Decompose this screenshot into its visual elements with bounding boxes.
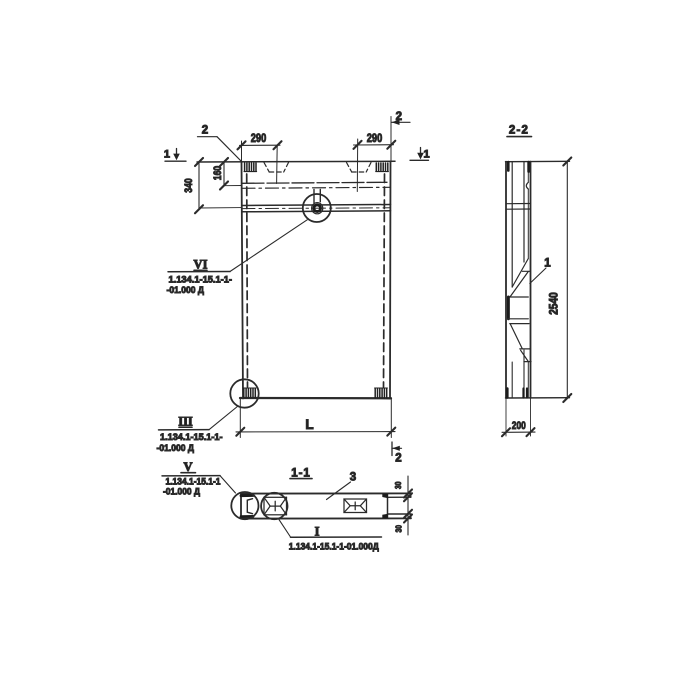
svg-text:200: 200 <box>512 420 526 432</box>
svg-text:290: 290 <box>367 133 383 145</box>
svg-text:1.134.1-15.1-1-: 1.134.1-15.1-1- <box>160 432 223 443</box>
svg-text:-01.000 Д: -01.000 Д <box>163 487 200 498</box>
svg-text:1: 1 <box>544 257 551 269</box>
svg-text:-01.000 Д: -01.000 Д <box>167 285 205 296</box>
svg-text:2540: 2540 <box>549 292 561 315</box>
svg-text:30: 30 <box>393 481 403 489</box>
svg-text:340: 340 <box>183 178 195 193</box>
svg-text:1.134.1-15.1-1-01.000Д: 1.134.1-15.1-1-01.000Д <box>289 541 379 552</box>
svg-text:2: 2 <box>202 124 208 136</box>
svg-text:-01.000 Д: -01.000 Д <box>157 443 195 454</box>
svg-text:2-2: 2-2 <box>509 124 529 136</box>
svg-text:2: 2 <box>396 111 402 123</box>
svg-text:160: 160 <box>212 166 224 181</box>
svg-text:30: 30 <box>393 525 403 533</box>
svg-text:1: 1 <box>424 149 430 161</box>
svg-text:1.134.1-15.1-1-: 1.134.1-15.1-1- <box>169 275 233 286</box>
svg-text:2: 2 <box>395 453 401 465</box>
svg-text:1: 1 <box>164 149 170 161</box>
svg-text:1-1: 1-1 <box>291 467 311 479</box>
svg-text:L: L <box>305 417 313 432</box>
svg-text:V: V <box>183 460 192 474</box>
svg-text:290: 290 <box>251 133 267 145</box>
svg-text:I: I <box>315 525 320 539</box>
